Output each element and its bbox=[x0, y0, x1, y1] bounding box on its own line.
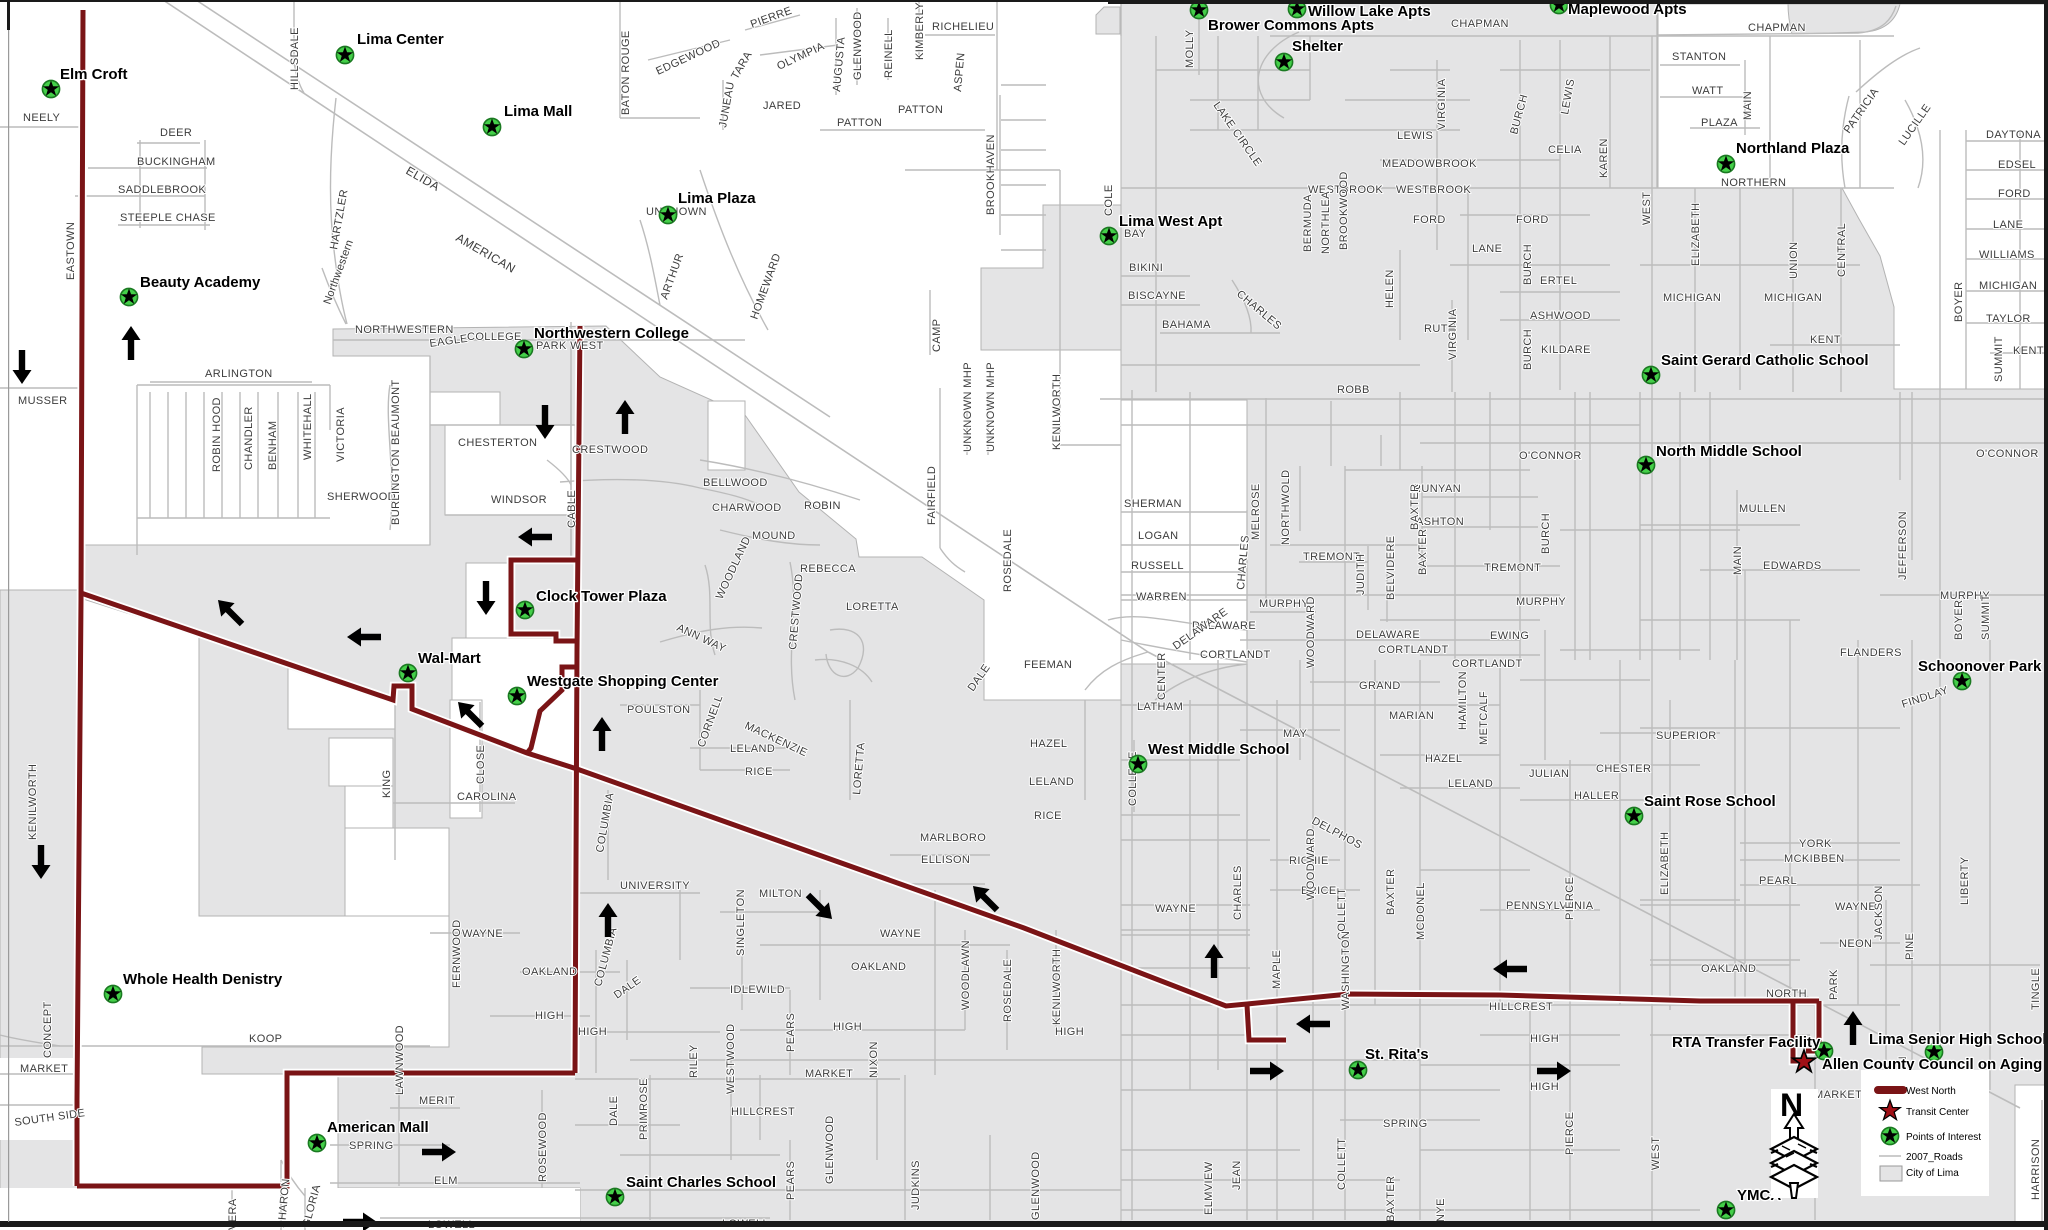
svg-text:WOODWARD: WOODWARD bbox=[1305, 596, 1317, 668]
svg-text:BEAUMONT: BEAUMONT bbox=[390, 379, 402, 445]
svg-text:EWING: EWING bbox=[1490, 630, 1529, 642]
svg-text:PIERCE: PIERCE bbox=[1564, 1112, 1576, 1155]
svg-text:LANE: LANE bbox=[1993, 219, 2023, 231]
svg-text:Clock Tower Plaza: Clock Tower Plaza bbox=[536, 588, 667, 605]
svg-text:UNKNOWN MHP: UNKNOWN MHP bbox=[962, 362, 974, 452]
svg-text:HIGH: HIGH bbox=[578, 1026, 607, 1038]
svg-text:Westgate Shopping Center: Westgate Shopping Center bbox=[527, 673, 719, 690]
svg-text:PINE: PINE bbox=[1904, 933, 1916, 960]
svg-text:MAY: MAY bbox=[1283, 728, 1307, 740]
svg-text:TREMONT: TREMONT bbox=[1303, 551, 1360, 563]
svg-text:KING: KING bbox=[381, 770, 393, 799]
svg-text:OAKLAND: OAKLAND bbox=[851, 961, 906, 973]
svg-text:BURCH: BURCH bbox=[1540, 513, 1552, 554]
svg-text:ARLINGTON: ARLINGTON bbox=[205, 368, 273, 380]
svg-text:BAXTER: BAXTER bbox=[1417, 529, 1429, 575]
svg-text:WINDSOR: WINDSOR bbox=[491, 494, 547, 506]
svg-text:SUPERIOR: SUPERIOR bbox=[1656, 730, 1717, 742]
svg-text:FAIRFIELD: FAIRFIELD bbox=[926, 466, 938, 525]
svg-text:HIGH: HIGH bbox=[1530, 1081, 1559, 1093]
svg-text:OAKLAND: OAKLAND bbox=[1701, 963, 1756, 975]
svg-text:HILLSDALE: HILLSDALE bbox=[289, 27, 301, 90]
svg-text:MCDONEL: MCDONEL bbox=[1415, 882, 1427, 940]
svg-text:NEELY: NEELY bbox=[23, 112, 61, 124]
svg-text:BROOKHAVEN: BROOKHAVEN bbox=[985, 134, 997, 215]
svg-text:PEARS: PEARS bbox=[785, 1161, 797, 1200]
svg-text:EASTOWN: EASTOWN bbox=[65, 222, 77, 280]
svg-text:Lima Plaza: Lima Plaza bbox=[678, 190, 756, 207]
svg-text:FORD: FORD bbox=[1413, 214, 1446, 226]
svg-text:REINELL: REINELL bbox=[883, 29, 895, 78]
svg-text:WHITEHALL: WHITEHALL bbox=[302, 393, 314, 460]
svg-text:CABLE: CABLE bbox=[566, 490, 578, 528]
svg-text:FLANDERS: FLANDERS bbox=[1840, 647, 1902, 659]
svg-text:PRIMROSE: PRIMROSE bbox=[638, 1078, 650, 1140]
svg-text:Lima West Apt: Lima West Apt bbox=[1119, 213, 1222, 230]
svg-text:WATT: WATT bbox=[1692, 85, 1724, 97]
svg-text:UNKNOWN MHP: UNKNOWN MHP bbox=[985, 362, 997, 452]
svg-text:SINGLETON: SINGLETON bbox=[735, 889, 747, 956]
svg-text:BURCH: BURCH bbox=[1522, 329, 1534, 370]
svg-text:MILTON: MILTON bbox=[759, 888, 802, 900]
svg-text:Northland Plaza: Northland Plaza bbox=[1736, 140, 1850, 157]
svg-text:West North: West North bbox=[1906, 1086, 1956, 1097]
svg-text:LEWIS: LEWIS bbox=[1397, 130, 1433, 142]
svg-text:WESTBROOK: WESTBROOK bbox=[1396, 184, 1471, 196]
svg-text:Points of Interest: Points of Interest bbox=[1906, 1132, 1981, 1143]
svg-text:BIKINI: BIKINI bbox=[1129, 262, 1163, 274]
svg-text:MARLBORO: MARLBORO bbox=[920, 832, 986, 844]
svg-text:RTA Transfer Facility: RTA Transfer Facility bbox=[1672, 1034, 1821, 1051]
svg-text:WAYNE: WAYNE bbox=[462, 928, 503, 940]
svg-text:NORTHWOLD: NORTHWOLD bbox=[1280, 469, 1292, 545]
svg-text:KENILWORTH: KENILWORTH bbox=[1051, 949, 1063, 1025]
svg-text:SPRING: SPRING bbox=[1383, 1118, 1428, 1130]
svg-text:METCALF: METCALF bbox=[1478, 691, 1490, 745]
svg-text:ELLISON: ELLISON bbox=[921, 854, 970, 866]
svg-text:HIGH: HIGH bbox=[1530, 1033, 1559, 1045]
svg-text:HELEN: HELEN bbox=[1384, 269, 1396, 308]
svg-text:CELIA: CELIA bbox=[1548, 144, 1582, 156]
svg-text:Lima Senior High School: Lima Senior High School bbox=[1869, 1031, 2047, 1048]
svg-text:2007_Roads: 2007_Roads bbox=[1906, 1152, 1963, 1163]
svg-text:EDWARDS: EDWARDS bbox=[1763, 560, 1822, 572]
svg-text:HAZEL: HAZEL bbox=[1425, 753, 1462, 765]
svg-text:WASHINGTON: WASHINGTON bbox=[1340, 931, 1352, 1010]
svg-text:GRAND: GRAND bbox=[1359, 680, 1401, 692]
svg-text:Elm Croft: Elm Croft bbox=[60, 66, 128, 83]
svg-text:CENTER: CENTER bbox=[1156, 652, 1168, 700]
svg-text:BERMUDA: BERMUDA bbox=[1302, 194, 1314, 252]
svg-text:BROOKWOOD: BROOKWOOD bbox=[1338, 171, 1350, 250]
svg-text:POULSTON: POULSTON bbox=[627, 704, 691, 716]
svg-text:JUDKINS: JUDKINS bbox=[910, 1160, 922, 1210]
svg-text:MAIN: MAIN bbox=[1732, 546, 1744, 575]
svg-text:CLOSE: CLOSE bbox=[475, 745, 487, 784]
svg-text:KOOP: KOOP bbox=[249, 1033, 282, 1045]
svg-text:HILLCREST: HILLCREST bbox=[1489, 1001, 1553, 1013]
svg-text:COLLEGE: COLLEGE bbox=[467, 331, 522, 343]
svg-text:CAROLINA: CAROLINA bbox=[457, 791, 517, 803]
svg-text:STEEPLE CHASE: STEEPLE CHASE bbox=[120, 212, 216, 224]
svg-text:FERNWOOD: FERNWOOD bbox=[451, 919, 463, 988]
svg-text:RICE: RICE bbox=[1034, 810, 1062, 822]
svg-text:VIRGINIA: VIRGINIA bbox=[1436, 78, 1448, 130]
svg-text:HIGH: HIGH bbox=[1055, 1026, 1084, 1038]
svg-text:COLLETT: COLLETT bbox=[1336, 1138, 1348, 1190]
svg-text:HARRISON: HARRISON bbox=[2030, 1139, 2042, 1200]
svg-text:SUMMIT: SUMMIT bbox=[1993, 336, 2005, 382]
svg-text:JEAN: JEAN bbox=[1231, 1160, 1243, 1190]
svg-text:BAXTER: BAXTER bbox=[1409, 484, 1421, 530]
svg-text:MURPHY: MURPHY bbox=[1259, 598, 1309, 610]
svg-text:HAMILTON: HAMILTON bbox=[1457, 671, 1469, 730]
svg-text:BISCAYNE: BISCAYNE bbox=[1128, 290, 1186, 302]
svg-text:CHAPMAN: CHAPMAN bbox=[1451, 18, 1509, 30]
svg-text:CORTLANDT: CORTLANDT bbox=[1452, 658, 1523, 670]
svg-text:JACKSON: JACKSON bbox=[1873, 885, 1885, 940]
svg-text:LIBERTY: LIBERTY bbox=[1959, 856, 1971, 905]
svg-text:ROBB: ROBB bbox=[1337, 384, 1370, 396]
svg-text:EDSEL: EDSEL bbox=[1998, 159, 2036, 171]
svg-text:HIGH: HIGH bbox=[833, 1021, 862, 1033]
svg-text:OAKLAND: OAKLAND bbox=[522, 966, 577, 978]
svg-text:LORETTA: LORETTA bbox=[846, 601, 899, 613]
svg-text:MICHIGAN: MICHIGAN bbox=[1663, 292, 1721, 304]
svg-text:JUDITH: JUDITH bbox=[1355, 553, 1367, 595]
svg-text:NEON: NEON bbox=[1839, 938, 1872, 950]
svg-text:JARED: JARED bbox=[763, 100, 801, 112]
svg-text:CORTLANDT: CORTLANDT bbox=[1378, 644, 1449, 656]
svg-text:ELIZABETH: ELIZABETH bbox=[1690, 202, 1702, 266]
svg-text:WEST: WEST bbox=[1650, 1137, 1662, 1170]
svg-text:NYE: NYE bbox=[1435, 1198, 1447, 1222]
svg-text:Transit Center: Transit Center bbox=[1906, 1107, 1970, 1118]
svg-text:MAPLE: MAPLE bbox=[1271, 950, 1283, 989]
svg-text:ROSEWOOD: ROSEWOOD bbox=[537, 1112, 549, 1182]
svg-text:HIGH: HIGH bbox=[535, 1010, 564, 1022]
svg-text:WOODLAWN: WOODLAWN bbox=[960, 940, 972, 1010]
svg-text:TINGLE: TINGLE bbox=[2030, 968, 2042, 1010]
svg-text:CONCEPT: CONCEPT bbox=[42, 1001, 54, 1058]
svg-text:PARK: PARK bbox=[1828, 969, 1840, 1000]
svg-text:MEADOWBROOK: MEADOWBROOK bbox=[1382, 158, 1477, 170]
svg-text:O'CONNOR: O'CONNOR bbox=[1976, 448, 2039, 460]
svg-text:MERIT: MERIT bbox=[419, 1095, 455, 1107]
svg-text:HALLER: HALLER bbox=[1574, 790, 1619, 802]
svg-text:RUSSELL: RUSSELL bbox=[1131, 560, 1184, 572]
svg-text:MULLEN: MULLEN bbox=[1739, 503, 1786, 515]
svg-text:BOYER: BOYER bbox=[1953, 281, 1965, 322]
svg-text:GLENWOOD: GLENWOOD bbox=[852, 11, 864, 80]
svg-text:LELAND: LELAND bbox=[1448, 778, 1493, 790]
svg-text:RICHELIEU: RICHELIEU bbox=[932, 21, 994, 33]
svg-text:YORK: YORK bbox=[1799, 838, 1832, 850]
svg-text:ROSEDALE: ROSEDALE bbox=[1002, 959, 1014, 1022]
svg-text:SPRING: SPRING bbox=[349, 1140, 394, 1152]
svg-text:NORTH: NORTH bbox=[1766, 988, 1807, 1000]
svg-text:KAREN: KAREN bbox=[1598, 138, 1610, 178]
svg-text:KENILWORTH: KENILWORTH bbox=[27, 764, 39, 840]
svg-text:MOLLY: MOLLY bbox=[1184, 29, 1196, 68]
svg-text:WAYNE: WAYNE bbox=[1835, 901, 1876, 913]
svg-text:ERTEL: ERTEL bbox=[1540, 275, 1577, 287]
svg-text:CHESTERTON: CHESTERTON bbox=[458, 437, 537, 449]
svg-text:MARKET: MARKET bbox=[805, 1068, 853, 1080]
svg-text:American Mall: American Mall bbox=[327, 1119, 429, 1136]
svg-text:ELM: ELM bbox=[434, 1175, 458, 1187]
svg-text:LOGAN: LOGAN bbox=[1138, 530, 1179, 542]
svg-text:PENNSYLVANIA: PENNSYLVANIA bbox=[1506, 900, 1594, 912]
svg-text:LELAND: LELAND bbox=[730, 743, 775, 755]
svg-text:NORTHERN: NORTHERN bbox=[1721, 177, 1786, 189]
svg-text:CHARLES: CHARLES bbox=[1232, 865, 1244, 920]
svg-text:MELROSE: MELROSE bbox=[1250, 483, 1262, 540]
svg-text:Wal-Mart: Wal-Mart bbox=[418, 650, 481, 667]
svg-text:CHANDLER: CHANDLER bbox=[243, 406, 255, 470]
svg-text:CENTRAL: CENTRAL bbox=[1836, 223, 1848, 277]
svg-text:JEFFERSON: JEFFERSON bbox=[1897, 511, 1909, 580]
svg-text:MURPHY: MURPHY bbox=[1516, 596, 1566, 608]
svg-text:VIRGINIA: VIRGINIA bbox=[1447, 308, 1459, 360]
svg-text:Saint Charles School: Saint Charles School bbox=[626, 1174, 776, 1191]
svg-text:MOUND: MOUND bbox=[752, 530, 796, 542]
svg-text:ELIZABETH: ELIZABETH bbox=[1659, 831, 1671, 895]
svg-text:MARKET: MARKET bbox=[20, 1063, 68, 1075]
svg-text:BOYER: BOYER bbox=[1953, 599, 1965, 640]
svg-text:MUSSER: MUSSER bbox=[18, 395, 67, 407]
svg-text:NORTHWESTERN: NORTHWESTERN bbox=[355, 324, 454, 336]
svg-text:LATHAM: LATHAM bbox=[1137, 701, 1183, 713]
svg-text:GLENWOOD: GLENWOOD bbox=[1030, 1151, 1042, 1220]
svg-text:WARREN: WARREN bbox=[1136, 591, 1187, 603]
svg-text:LELAND: LELAND bbox=[1029, 776, 1074, 788]
svg-text:BELLWOOD: BELLWOOD bbox=[703, 477, 768, 489]
svg-text:FORD: FORD bbox=[1998, 188, 2031, 200]
svg-text:Saint Gerard Catholic School: Saint Gerard Catholic School bbox=[1661, 352, 1869, 369]
svg-text:HAZEL: HAZEL bbox=[1030, 738, 1067, 750]
svg-text:UNION: UNION bbox=[1788, 242, 1800, 279]
svg-text:North Middle School: North Middle School bbox=[1656, 443, 1802, 460]
svg-text:HILLCREST: HILLCREST bbox=[731, 1106, 795, 1118]
svg-text:DAYTONA: DAYTONA bbox=[1986, 129, 2041, 141]
svg-text:WAYNE: WAYNE bbox=[880, 928, 921, 940]
svg-text:WESTWOOD: WESTWOOD bbox=[725, 1024, 737, 1094]
svg-text:CHARWOOD: CHARWOOD bbox=[712, 502, 782, 514]
svg-text:ELMVIEW: ELMVIEW bbox=[1203, 1161, 1215, 1215]
svg-text:MAIN: MAIN bbox=[1742, 91, 1754, 120]
svg-text:BURLINGTON: BURLINGTON bbox=[390, 449, 402, 525]
svg-text:Whole Health Denistry: Whole Health Denistry bbox=[123, 971, 283, 988]
svg-text:Lima Mall: Lima Mall bbox=[504, 103, 572, 120]
svg-text:PATTON: PATTON bbox=[898, 104, 943, 116]
svg-text:LAWNWOOD: LAWNWOOD bbox=[394, 1025, 406, 1095]
svg-text:PEARS: PEARS bbox=[785, 1013, 797, 1052]
svg-text:WEST: WEST bbox=[1641, 192, 1653, 225]
svg-text:FORD: FORD bbox=[1516, 214, 1549, 226]
svg-text:LANE: LANE bbox=[1472, 243, 1502, 255]
svg-text:RICE: RICE bbox=[745, 766, 773, 778]
svg-text:WILLIAMS: WILLIAMS bbox=[1979, 249, 2035, 261]
svg-text:VICTORIA: VICTORIA bbox=[335, 407, 347, 462]
svg-text:GLENWOOD: GLENWOOD bbox=[824, 1115, 836, 1184]
svg-text:KIMBERLY: KIMBERLY bbox=[914, 2, 926, 60]
svg-text:Lima Center: Lima Center bbox=[357, 31, 444, 48]
svg-text:RILEY: RILEY bbox=[688, 1044, 700, 1078]
svg-text:DEER: DEER bbox=[160, 127, 192, 139]
svg-text:CHESTER: CHESTER bbox=[1596, 763, 1651, 775]
svg-text:BAXTER: BAXTER bbox=[1385, 1176, 1397, 1222]
svg-text:ASHTON: ASHTON bbox=[1416, 516, 1464, 528]
svg-text:REBECCA: REBECCA bbox=[800, 563, 856, 575]
svg-text:CAMP: CAMP bbox=[931, 319, 943, 352]
svg-text:DALE: DALE bbox=[608, 1096, 620, 1126]
svg-text:ROBIN HOOD: ROBIN HOOD bbox=[211, 397, 223, 472]
svg-text:CORTLANDT: CORTLANDT bbox=[1200, 649, 1271, 661]
svg-text:City of Lima: City of Lima bbox=[1906, 1168, 1959, 1179]
svg-text:BAXTER: BAXTER bbox=[1385, 869, 1397, 915]
svg-text:WAYNE: WAYNE bbox=[1155, 903, 1196, 915]
svg-text:MICHIGAN: MICHIGAN bbox=[1764, 292, 1822, 304]
svg-text:PLAZA: PLAZA bbox=[1701, 117, 1738, 129]
svg-text:MICHIGAN: MICHIGAN bbox=[1979, 280, 2037, 292]
svg-text:DELAWARE: DELAWARE bbox=[1356, 629, 1420, 641]
svg-text:MCKIBBEN: MCKIBBEN bbox=[1784, 853, 1845, 865]
svg-text:CHAPMAN: CHAPMAN bbox=[1748, 22, 1806, 34]
svg-text:TAYLOR: TAYLOR bbox=[1986, 313, 2031, 325]
svg-text:PEARL: PEARL bbox=[1759, 875, 1797, 887]
svg-text:IDLEWILD: IDLEWILD bbox=[730, 984, 785, 996]
svg-text:SHERWOOD: SHERWOOD bbox=[327, 491, 396, 503]
svg-text:O'CONNOR: O'CONNOR bbox=[1519, 450, 1582, 462]
svg-text:PATTON: PATTON bbox=[837, 117, 882, 129]
svg-text:West Middle School: West Middle School bbox=[1148, 741, 1289, 758]
svg-text:STANTON: STANTON bbox=[1672, 51, 1726, 63]
svg-text:SHERMAN: SHERMAN bbox=[1124, 498, 1182, 510]
svg-text:FEEMAN: FEEMAN bbox=[1024, 659, 1072, 671]
svg-text:NIXON: NIXON bbox=[868, 1041, 880, 1078]
svg-text:COLE: COLE bbox=[1103, 184, 1115, 216]
svg-text:Schoonover Park: Schoonover Park bbox=[1918, 658, 2042, 675]
svg-text:TREMONT: TREMONT bbox=[1484, 562, 1541, 574]
svg-text:MARIAN: MARIAN bbox=[1389, 710, 1434, 722]
svg-text:BELVIDERE: BELVIDERE bbox=[1385, 535, 1397, 600]
svg-text:ROBIN: ROBIN bbox=[804, 500, 841, 512]
svg-text:KENT: KENT bbox=[2013, 345, 2044, 357]
svg-text:Shelter: Shelter bbox=[1292, 38, 1343, 55]
svg-text:CRESTWOOD: CRESTWOOD bbox=[572, 444, 648, 456]
svg-text:Saint Rose School: Saint Rose School bbox=[1644, 793, 1776, 810]
svg-text:Northwestern College: Northwestern College bbox=[534, 325, 689, 342]
svg-text:St. Rita's: St. Rita's bbox=[1365, 1046, 1429, 1063]
svg-text:PIERCE: PIERCE bbox=[1564, 877, 1576, 920]
svg-text:SADDLEBROOK: SADDLEBROOK bbox=[118, 184, 206, 196]
svg-text:WOODWARD: WOODWARD bbox=[1305, 828, 1317, 900]
svg-text:ROSEDALE: ROSEDALE bbox=[1002, 529, 1014, 592]
svg-text:BATON ROUGE: BATON ROUGE bbox=[620, 30, 632, 115]
svg-text:KILDARE: KILDARE bbox=[1541, 344, 1591, 356]
svg-text:NORTHLEA: NORTHLEA bbox=[1320, 191, 1332, 254]
svg-text:ASHWOOD: ASHWOOD bbox=[1530, 310, 1591, 322]
svg-text:BENHAM: BENHAM bbox=[267, 421, 279, 470]
svg-text:KENILWORTH: KENILWORTH bbox=[1051, 374, 1063, 450]
svg-text:UNIVERSITY: UNIVERSITY bbox=[620, 880, 690, 892]
svg-text:MARKET: MARKET bbox=[1814, 1089, 1862, 1101]
svg-text:KENT: KENT bbox=[1810, 334, 1841, 346]
svg-text:Beauty Academy: Beauty Academy bbox=[140, 274, 261, 291]
svg-text:BAHAMA: BAHAMA bbox=[1162, 319, 1211, 331]
svg-text:Brower Commons Apts: Brower Commons Apts bbox=[1208, 17, 1374, 34]
svg-text:BURCH: BURCH bbox=[1522, 244, 1534, 285]
svg-text:JULIAN: JULIAN bbox=[1529, 768, 1569, 780]
svg-text:SUMMIT: SUMMIT bbox=[1980, 594, 1992, 640]
svg-text:BUCKINGHAM: BUCKINGHAM bbox=[137, 156, 216, 168]
